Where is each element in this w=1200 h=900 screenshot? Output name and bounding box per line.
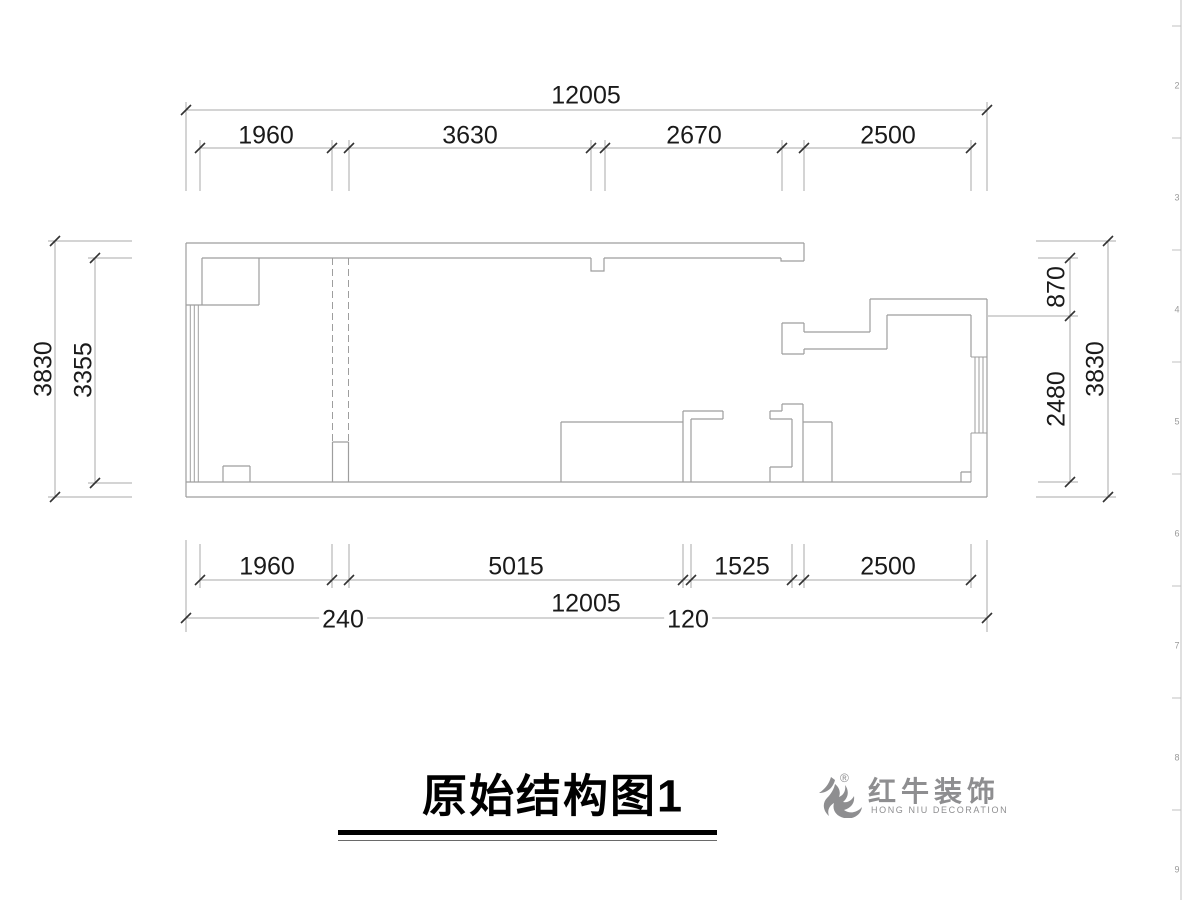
- platform-rect: [561, 422, 683, 482]
- dim-label-wall-240: 240: [319, 608, 367, 633]
- ruler-number: 6: [1174, 530, 1179, 539]
- dim-label-top-2: 3630: [442, 124, 498, 149]
- dim-label-right-870: 870: [1045, 266, 1070, 308]
- dim-label-right-2480: 2480: [1045, 371, 1070, 427]
- top-left-room: [186, 258, 259, 305]
- dimension-ticks: [50, 105, 1113, 623]
- corner-column-bottom-left: [223, 466, 250, 482]
- logo-company-name-zh: 红牛装饰: [868, 778, 1000, 806]
- ruler-number: 7: [1174, 642, 1179, 651]
- logo-company-name-en: HONG NIU DECORATION: [871, 806, 1008, 815]
- pier-side-wall: [803, 422, 832, 482]
- dim-label-top-1: 1960: [238, 124, 294, 149]
- window-left: [190, 305, 198, 482]
- dim-label-top-4: 2500: [860, 124, 916, 149]
- ruler-number: 5: [1174, 418, 1179, 427]
- ruler-number: 8: [1174, 754, 1179, 763]
- ruler-number: 4: [1174, 306, 1179, 315]
- dim-label-bottom-2: 5015: [488, 555, 544, 580]
- ruler-number: 3: [1174, 194, 1179, 203]
- window-right: [971, 357, 987, 482]
- dim-label-bottom-total: 12005: [551, 592, 621, 617]
- corner-column-bottom-right: [961, 472, 971, 482]
- dim-label-bottom-3: 1525: [714, 555, 770, 580]
- company-logo: ® 红牛装饰 HONG NIU DECORATION: [818, 772, 1003, 818]
- registered-trademark-icon: ®: [840, 772, 849, 784]
- dim-label-bottom-4: 2500: [860, 555, 916, 580]
- dim-label-bottom-1: 1960: [239, 555, 295, 580]
- title-underline-thick: [338, 830, 717, 835]
- wall-outer-shell: [186, 243, 987, 497]
- dim-label-left-outer: 3830: [32, 341, 57, 397]
- dashed-removed-wall: [333, 258, 349, 442]
- dim-lines-vertical: [55, 241, 1108, 497]
- dim-label-right-outer: 3830: [1084, 341, 1109, 397]
- upper-right-stepped-wall: [782, 299, 987, 357]
- dim-label-top-3: 2670: [666, 124, 722, 149]
- ruler-number: 2: [1174, 82, 1179, 91]
- dim-label-left-inner: 3355: [72, 342, 97, 398]
- title-underline-thin: [338, 840, 717, 841]
- dim-label-top-total: 12005: [551, 84, 621, 109]
- drawing-sheet: { "drawing": { "title": "原始结构图1", "dimen…: [0, 0, 1200, 900]
- wall-top-inner: [202, 258, 804, 271]
- dim-label-wall-120: 120: [664, 608, 712, 633]
- dimension-lines: [48, 102, 1116, 632]
- partition-stub: [333, 442, 349, 482]
- frame-ruler: [1172, 0, 1181, 900]
- walls: [186, 243, 987, 497]
- dim-lines-horizontal: [186, 110, 987, 618]
- l-partition-wall: [683, 411, 723, 482]
- middle-pier-wall: [770, 404, 803, 482]
- ruler-number: 9: [1174, 866, 1179, 875]
- drawing-title: 原始结构图1: [422, 760, 684, 825]
